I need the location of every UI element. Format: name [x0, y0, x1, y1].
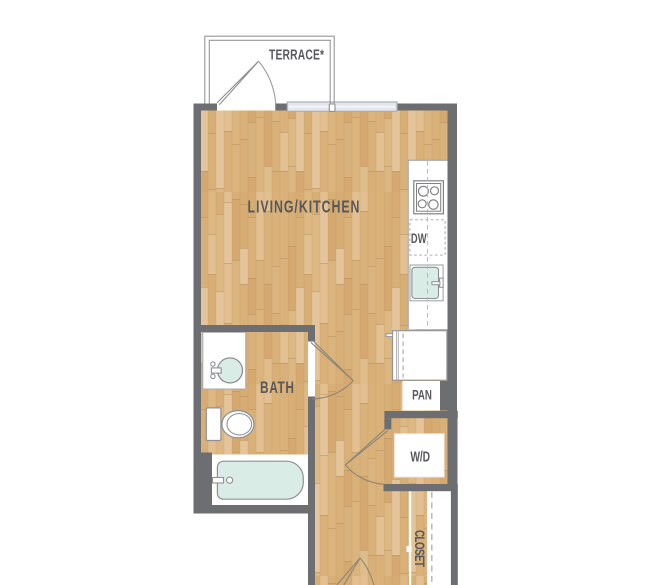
svg-text:TERRACE*: TERRACE* — [269, 47, 324, 63]
svg-text:BATH: BATH — [260, 379, 294, 398]
svg-text:DW: DW — [411, 232, 427, 246]
svg-text:PAN: PAN — [412, 387, 432, 403]
svg-text:LIVING/KITCHEN: LIVING/KITCHEN — [248, 198, 360, 218]
svg-text:CLOSET: CLOSET — [412, 530, 428, 568]
svg-text:W/D: W/D — [410, 449, 430, 465]
